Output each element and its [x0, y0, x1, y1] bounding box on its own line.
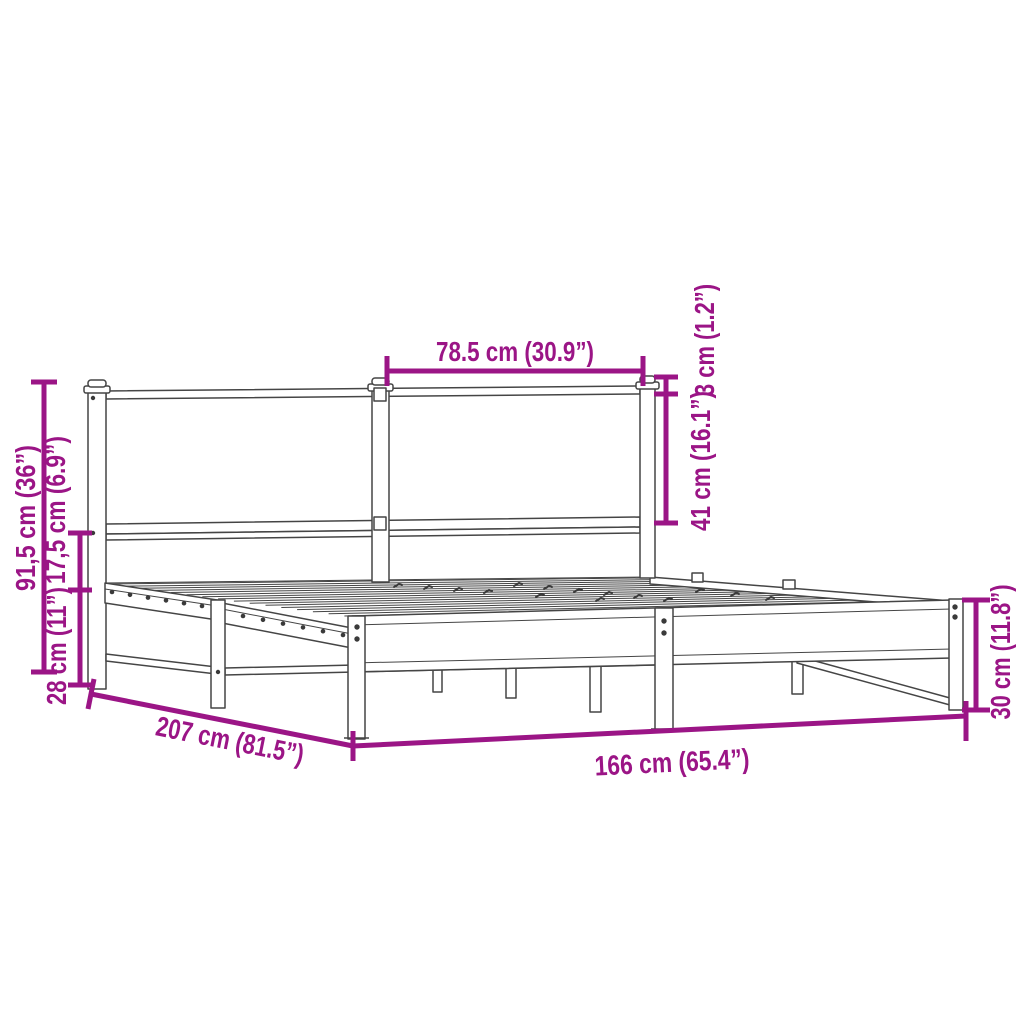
dimension-base-height: 28 cm (11”): [41, 587, 92, 705]
dimension-panel-width: 78.5 cm (30.9”): [387, 336, 643, 386]
headboard-post-middle: [372, 390, 389, 582]
diagram-canvas: 78.5 cm (30.9”) 3 cm (1.2”) 41 cm (16.1”…: [0, 0, 1024, 1024]
rail-hole: [110, 590, 115, 595]
rail-hole: [281, 621, 286, 626]
rail-hole: [301, 625, 306, 630]
slat-clip: [536, 594, 544, 597]
headboard-height-label: 41 cm (16.1”): [685, 391, 716, 531]
front-middle-leg: [655, 608, 673, 730]
slat-clip: [634, 595, 642, 598]
post-screw-top: [91, 396, 95, 400]
clearance-height-label: 17,5 cm (6.9”): [40, 436, 71, 584]
panel-width-label: 78.5 cm (30.9”): [436, 336, 594, 367]
stretcher-right: [797, 656, 950, 705]
width-label: 166 cm (65.4”): [594, 743, 750, 782]
bed-frame-dimension-diagram: 78.5 cm (30.9”) 3 cm (1.2”) 41 cm (16.1”…: [0, 0, 1024, 1024]
slat-clip: [696, 589, 704, 592]
side-rail-segment-2: [222, 603, 352, 648]
dimension-frame-side-height: 30 cm (11.8”): [962, 585, 1016, 720]
rail-hole: [128, 593, 133, 598]
base-height-label: 28 cm (11”): [41, 587, 72, 705]
dimension-headboard-height: 41 cm (16.1”): [654, 391, 716, 531]
front-left-leg: [348, 616, 365, 739]
middle-post-connector-bottom: [374, 517, 386, 530]
frame-side-height-label: 30 cm (11.8”): [985, 585, 1016, 720]
cap-height-label: 3 cm (1.2”): [689, 284, 720, 396]
rear-bracket-1: [692, 573, 703, 582]
side-leg: [211, 600, 225, 708]
rail-hole: [341, 633, 346, 638]
stretcher-left: [106, 654, 225, 675]
total-height-label: 91,5 cm (36”): [10, 445, 41, 591]
rail-hole: [164, 598, 169, 603]
headboard-post-right: [640, 388, 655, 578]
dimension-clearance-height: 17,5 cm (6.9”): [40, 436, 92, 590]
rail-hole: [321, 629, 326, 634]
slat-clip: [664, 598, 672, 601]
slat-clip: [574, 589, 582, 592]
rail-hole: [261, 618, 266, 623]
dimension-cap-height: 3 cm (1.2”): [654, 284, 720, 396]
slat-clip: [731, 593, 739, 596]
rail-hole: [182, 601, 187, 606]
rail-hole: [241, 614, 246, 619]
rail-hole: [146, 595, 151, 600]
middle-post-connector-top: [374, 388, 386, 401]
post-cap-left-dome: [88, 380, 106, 387]
headboard-post-left: [88, 391, 106, 689]
rail-hole: [200, 604, 205, 609]
bed-frame-drawing: [84, 376, 963, 739]
rear-bracket-2: [783, 580, 795, 589]
